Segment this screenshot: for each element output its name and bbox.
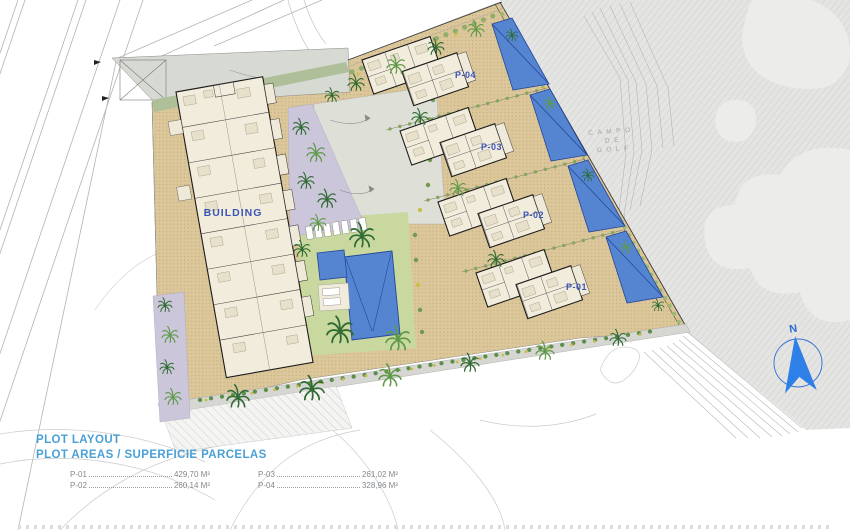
legend-item-p02: P-02 260,14 M² — [70, 480, 210, 491]
legend-item-value: 328,96 M² — [362, 480, 398, 491]
legend-item-label: P-03 — [258, 469, 275, 480]
cropped-footer-text — [18, 525, 832, 529]
plot-label-p02: P-02 — [523, 210, 544, 220]
planting-bed-west — [153, 292, 190, 422]
legend-item-label: P-02 — [70, 480, 87, 491]
communal-pool-small — [317, 250, 347, 280]
plot-label-p03: P-03 — [481, 142, 502, 152]
road-arrow-icons — [94, 60, 109, 101]
building-label: BUILDING — [204, 207, 263, 219]
legend-item-label: P-04 — [258, 480, 275, 491]
golf-label-line2: DE — [605, 136, 623, 144]
communal-pool-main — [344, 251, 400, 340]
plot-label-p01: P-01 — [566, 282, 587, 292]
plot-label-p04: P-04 — [455, 70, 476, 80]
legend-item-p04: P-04 328,96 M² — [258, 480, 398, 491]
legend-item-value: 260,14 M² — [174, 480, 210, 491]
legend-item-label: P-01 — [70, 469, 87, 480]
dotted-leader — [277, 476, 360, 477]
legend-items: P-01 429,70 M² P-02 260,14 M² P-03 261,0… — [70, 469, 398, 491]
dotted-leader — [89, 487, 172, 488]
legend-subtitle: PLOT AREAS / SUPERFICIE PARCELAS — [36, 448, 398, 463]
legend-title: PLOT LAYOUT — [36, 433, 398, 448]
legend-item-p01: P-01 429,70 M² — [70, 469, 210, 480]
dotted-leader — [89, 476, 172, 477]
dotted-leader — [277, 487, 360, 488]
legend-item-p03: P-03 261,02 M² — [258, 469, 398, 480]
legend-item-value: 429,70 M² — [174, 469, 210, 480]
legend: PLOT LAYOUT PLOT AREAS / SUPERFICIE PARC… — [36, 433, 398, 491]
legend-item-value: 261,02 M² — [362, 469, 398, 480]
